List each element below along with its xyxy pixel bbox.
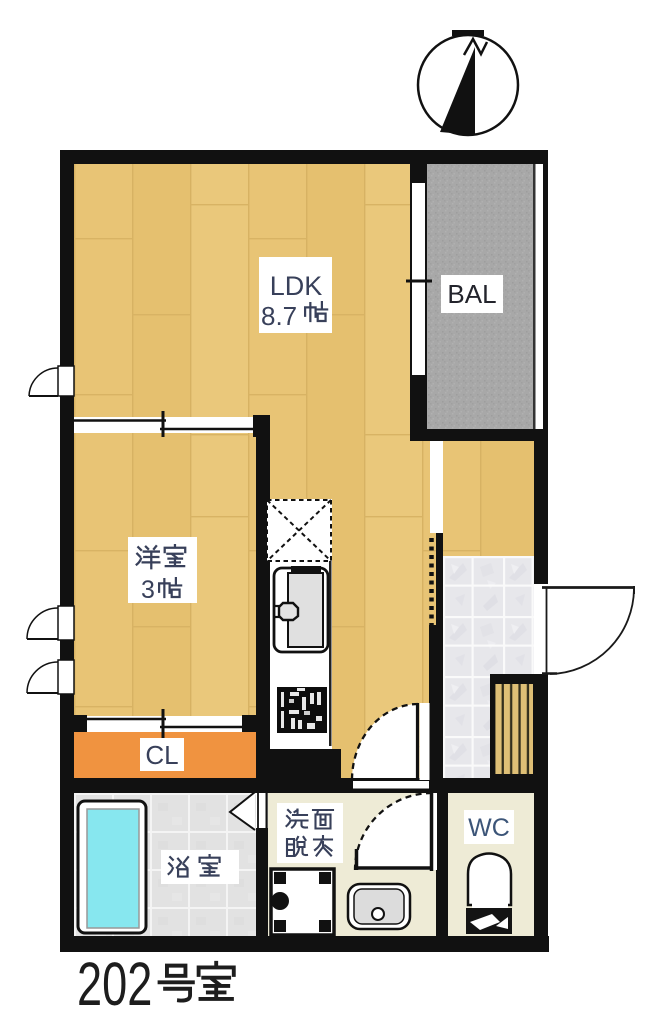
svg-text:BAL: BAL — [447, 279, 496, 309]
svg-text:8.7: 8.7 — [261, 301, 297, 331]
svg-text:CL: CL — [145, 740, 178, 770]
svg-text:3: 3 — [141, 576, 155, 604]
svg-text:WC: WC — [468, 814, 510, 842]
svg-text:LDK: LDK — [270, 271, 323, 301]
svg-text:202: 202 — [77, 950, 152, 1018]
